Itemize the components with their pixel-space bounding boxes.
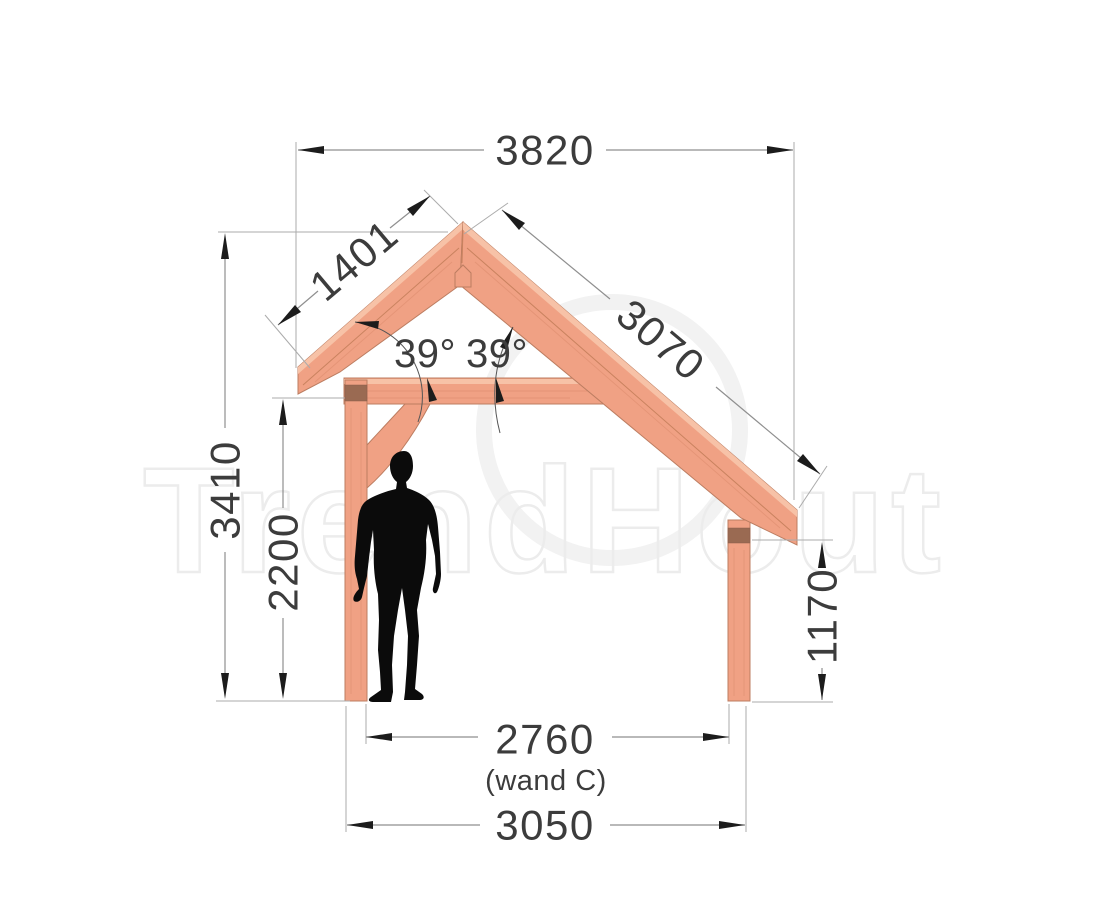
arrowhead (767, 146, 793, 154)
arrowhead (279, 399, 287, 425)
arrowhead (221, 233, 229, 259)
left-post-connector-band (345, 385, 367, 401)
arrowhead (407, 196, 430, 216)
arrowhead (818, 674, 826, 700)
ext-right-roof-apex (464, 203, 508, 234)
ext-left-roof-apex (424, 190, 458, 224)
arrowhead (366, 733, 392, 741)
dim-outer-span-value: 3050 (495, 802, 594, 849)
dim-angle-left-value: 39° (394, 332, 456, 376)
dim-inner-span: 2760 (wand C) (366, 716, 729, 798)
dim-ridge-height: 3410 (202, 233, 249, 699)
cross-beam-highlight (344, 379, 608, 384)
dim-roof-span-value: 3820 (495, 127, 594, 174)
dim-inner-span-value: 2760 (495, 716, 594, 763)
dim-low-post-height-value: 1170 (799, 568, 846, 664)
dim-ridge-height-value: 3410 (202, 440, 249, 539)
arrowhead (719, 821, 745, 829)
arrowhead (278, 305, 301, 325)
right-post (728, 520, 750, 701)
arrowhead (703, 733, 729, 741)
arrowhead (502, 210, 525, 230)
arrowhead (221, 673, 229, 699)
arrowhead (279, 673, 287, 699)
ext-left-roof-eave (265, 315, 310, 368)
dim-outer-span: 3050 (347, 802, 745, 849)
dim-inner-span-note: (wand C) (485, 765, 607, 797)
dim-roof-span: 3820 (298, 127, 793, 174)
dim-angle-right-value: 39° (466, 332, 528, 376)
cross-beam (344, 378, 608, 404)
drawing-canvas: TrendHout (0, 0, 1096, 913)
veranda-elevation-drawing: TrendHout (0, 0, 1096, 913)
arrowhead (298, 146, 324, 154)
right-post-connector-band (728, 528, 750, 543)
dim-clear-height-value: 2200 (260, 512, 307, 611)
arrowhead (347, 821, 373, 829)
right-post-face (728, 520, 750, 701)
